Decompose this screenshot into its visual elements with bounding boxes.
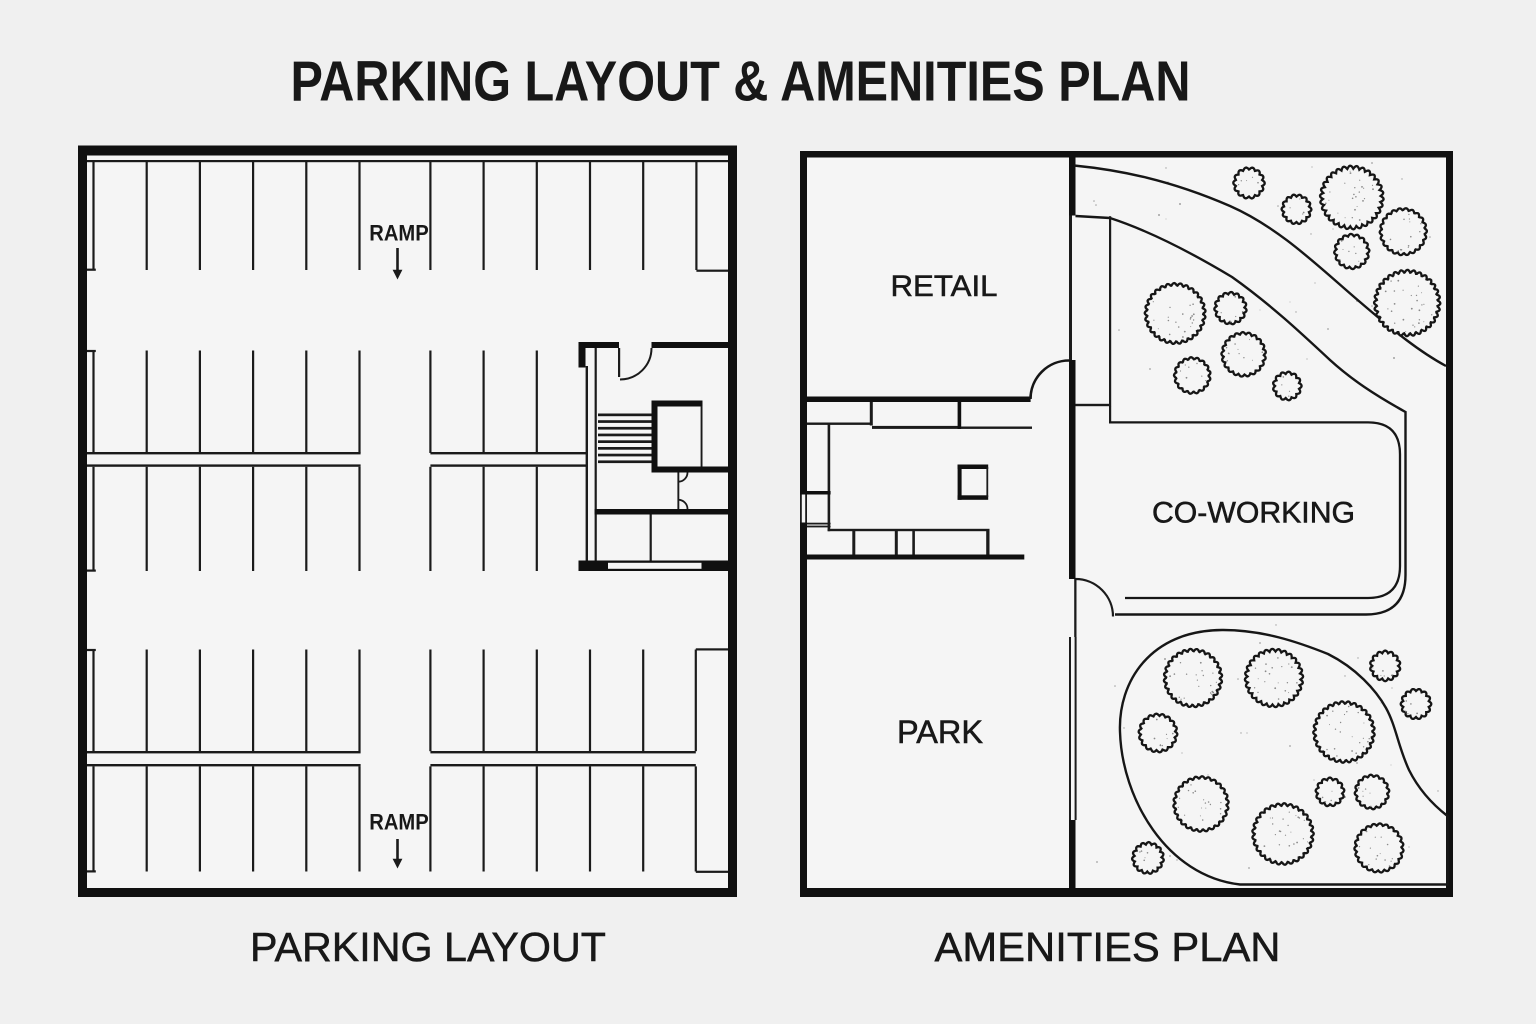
svg-text:RAMP: RAMP	[369, 221, 429, 246]
svg-text:PARK: PARK	[897, 714, 983, 750]
svg-text:RAMP: RAMP	[369, 810, 429, 835]
svg-text:AMENITIES PLAN: AMENITIES PLAN	[935, 924, 1281, 970]
svg-text:RETAIL: RETAIL	[891, 270, 998, 303]
svg-text:PARKING LAYOUT: PARKING LAYOUT	[250, 924, 606, 970]
svg-text:PARKING LAYOUT & AMENITIES PLA: PARKING LAYOUT & AMENITIES PLAN	[291, 50, 1191, 113]
svg-text:CO-WORKING: CO-WORKING	[1152, 497, 1355, 530]
